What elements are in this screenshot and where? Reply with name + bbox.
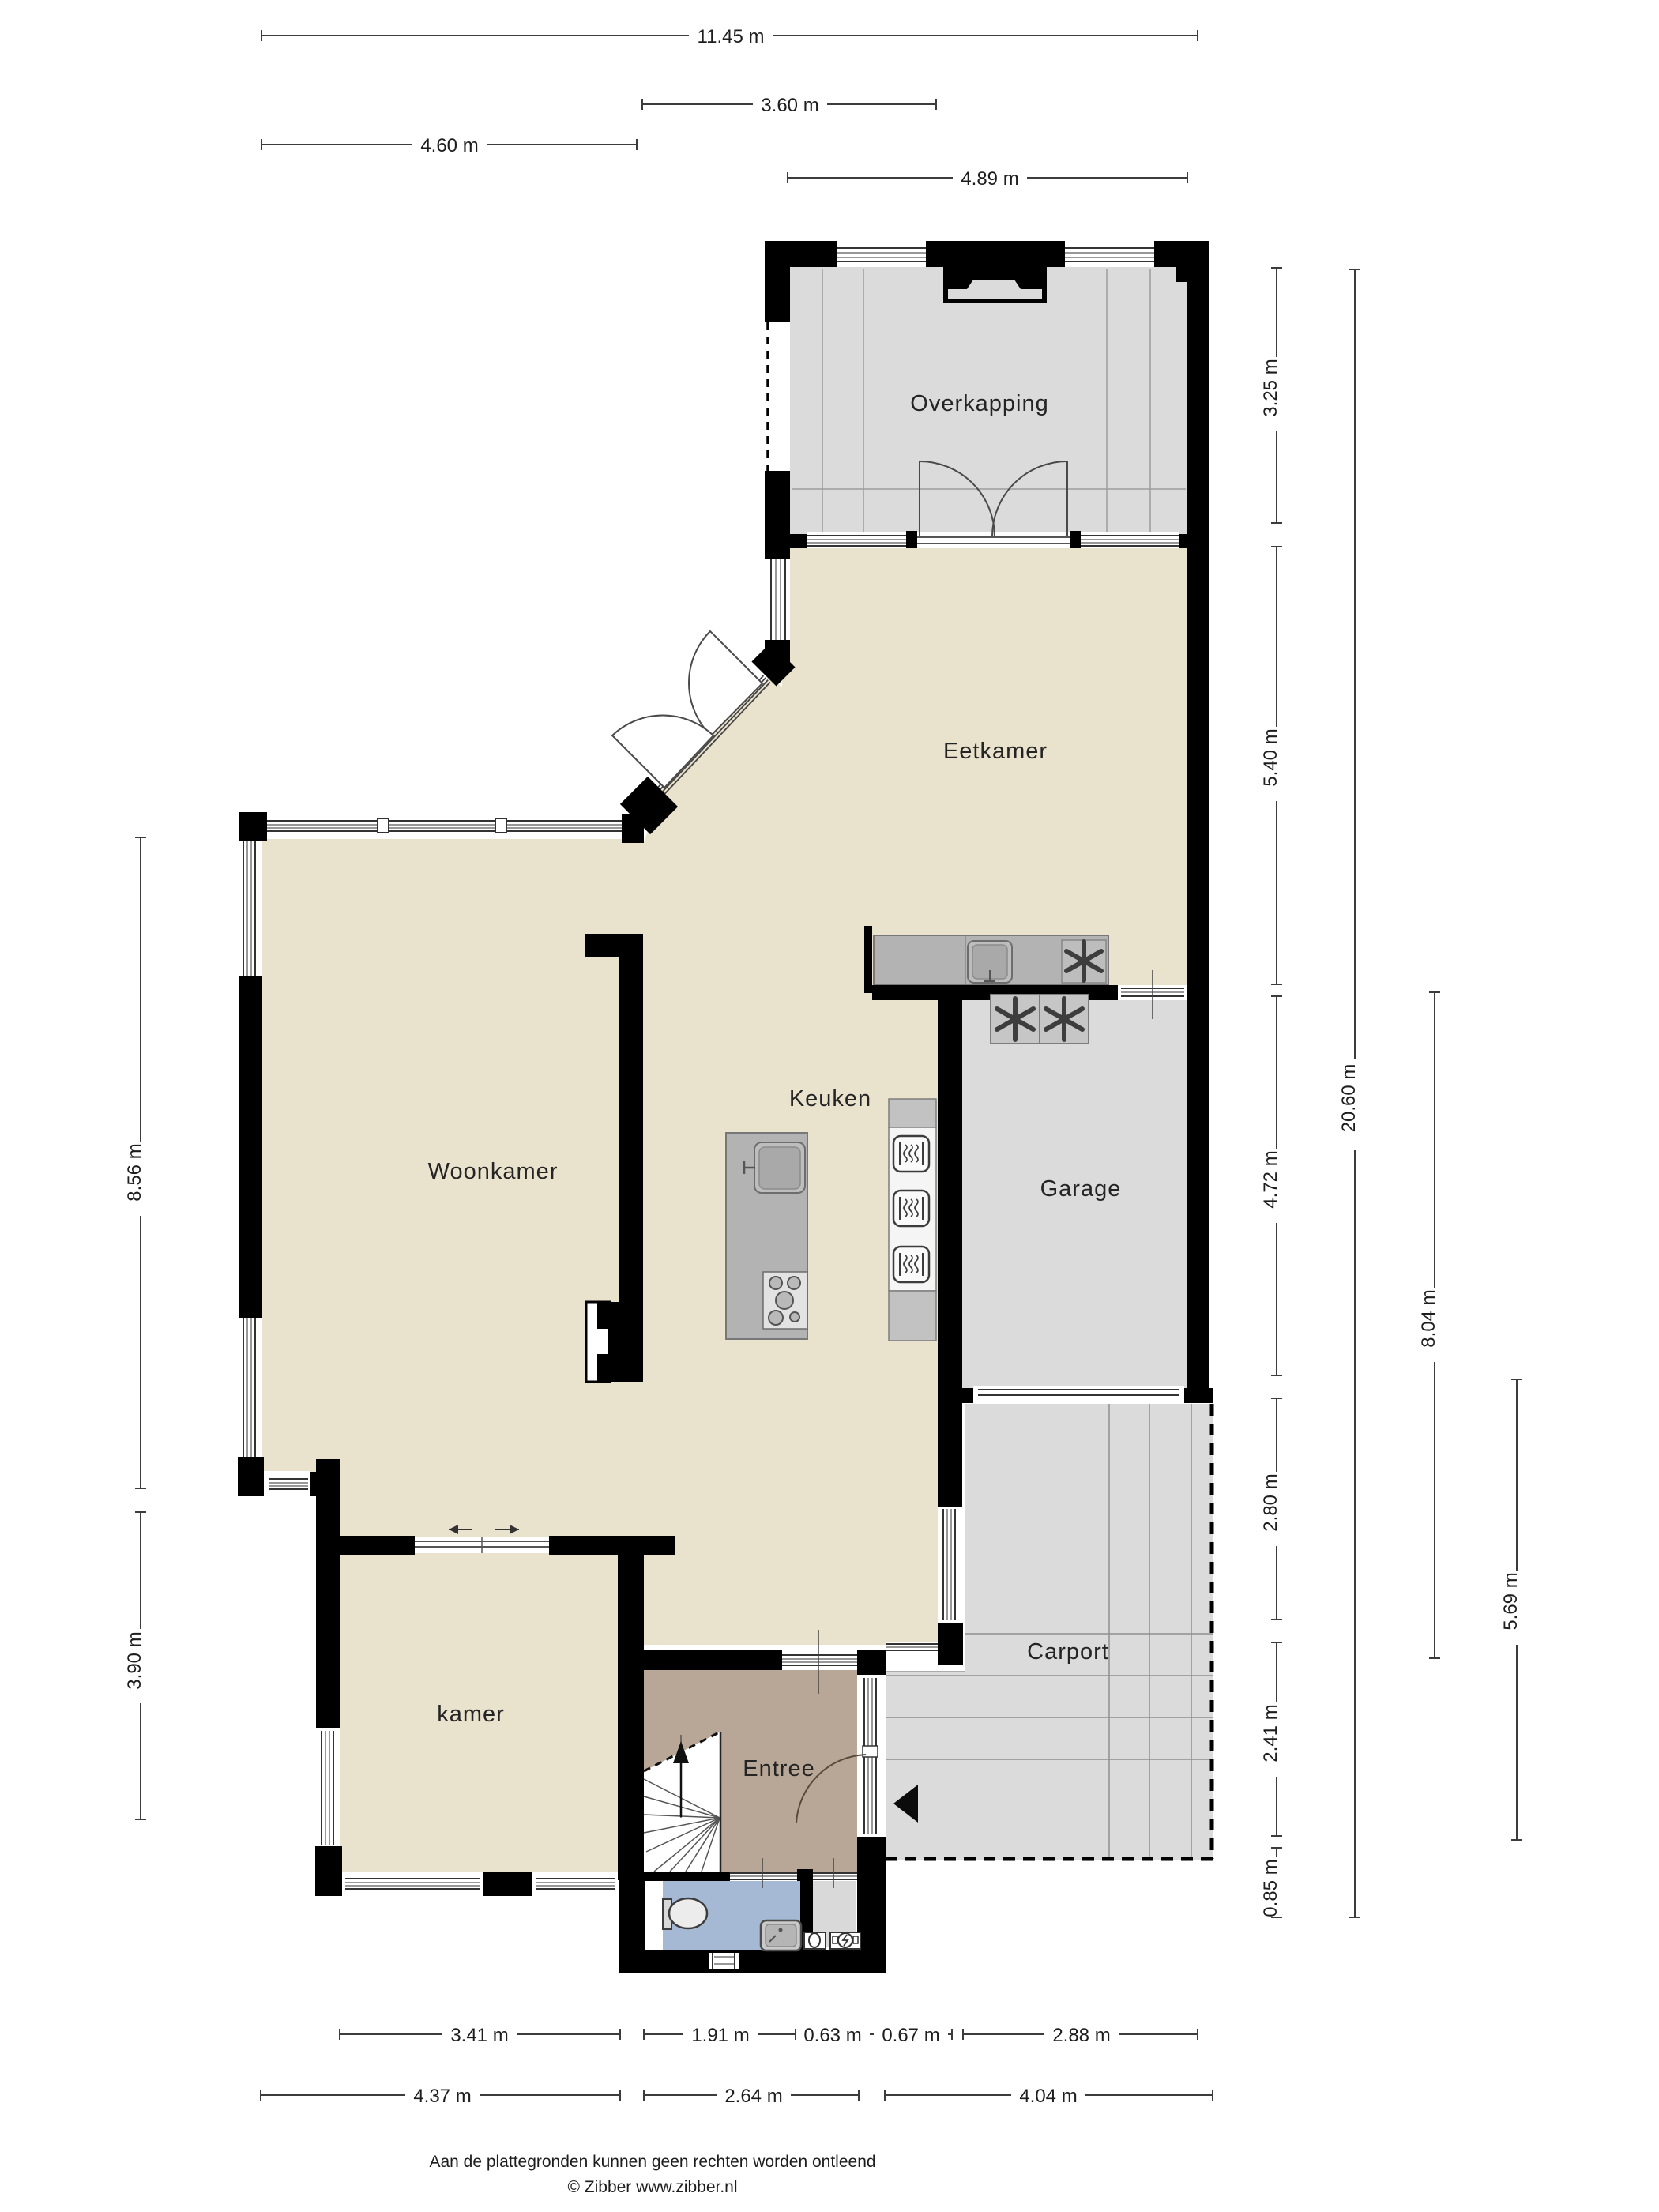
svg-text:0.67 m: 0.67 m bbox=[882, 2025, 939, 2046]
svg-text:8.04 m: 8.04 m bbox=[1418, 1289, 1439, 1347]
svg-text:3.90 m: 3.90 m bbox=[124, 1631, 145, 1689]
svg-text:2.88 m: 2.88 m bbox=[1052, 2025, 1110, 2046]
svg-text:2.80 m: 2.80 m bbox=[1260, 1473, 1281, 1531]
svg-text:Eetkamer: Eetkamer bbox=[943, 739, 1048, 764]
svg-text:© Zibber www.zibber.nl: © Zibber www.zibber.nl bbox=[567, 2178, 737, 2196]
svg-text:2.64 m: 2.64 m bbox=[724, 2086, 782, 2107]
svg-text:Carport: Carport bbox=[1027, 1639, 1109, 1665]
svg-text:3.41 m: 3.41 m bbox=[450, 2025, 508, 2046]
svg-text:2.41 m: 2.41 m bbox=[1260, 1704, 1281, 1762]
svg-text:5.40 m: 5.40 m bbox=[1260, 728, 1281, 786]
svg-text:4.89 m: 4.89 m bbox=[961, 168, 1018, 190]
svg-text:4.04 m: 4.04 m bbox=[1019, 2086, 1077, 2107]
svg-text:Keuken: Keuken bbox=[789, 1086, 871, 1112]
svg-text:0.85 m: 0.85 m bbox=[1260, 1859, 1281, 1917]
svg-text:4.60 m: 4.60 m bbox=[420, 135, 478, 156]
svg-text:11.45 m: 11.45 m bbox=[698, 26, 765, 47]
svg-text:Entree: Entree bbox=[743, 1756, 814, 1781]
svg-text:4.37 m: 4.37 m bbox=[413, 2086, 471, 2107]
svg-text:20.60 m: 20.60 m bbox=[1338, 1064, 1360, 1133]
svg-text:3.60 m: 3.60 m bbox=[761, 95, 818, 116]
svg-text:Aan de plattegronden kunnen ge: Aan de plattegronden kunnen geen rechten… bbox=[429, 2153, 875, 2171]
svg-text:8.56 m: 8.56 m bbox=[124, 1143, 145, 1201]
svg-text:5.69 m: 5.69 m bbox=[1500, 1572, 1522, 1630]
svg-text:Woonkamer: Woonkamer bbox=[428, 1159, 559, 1184]
svg-text:Overkapping: Overkapping bbox=[910, 391, 1048, 416]
svg-text:4.72 m: 4.72 m bbox=[1260, 1150, 1281, 1208]
svg-text:kamer: kamer bbox=[437, 1702, 505, 1727]
svg-text:3.25 m: 3.25 m bbox=[1260, 359, 1281, 416]
svg-text:0.63 m: 0.63 m bbox=[803, 2025, 861, 2046]
svg-text:Garage: Garage bbox=[1040, 1176, 1122, 1202]
svg-text:1.91 m: 1.91 m bbox=[691, 2025, 749, 2046]
